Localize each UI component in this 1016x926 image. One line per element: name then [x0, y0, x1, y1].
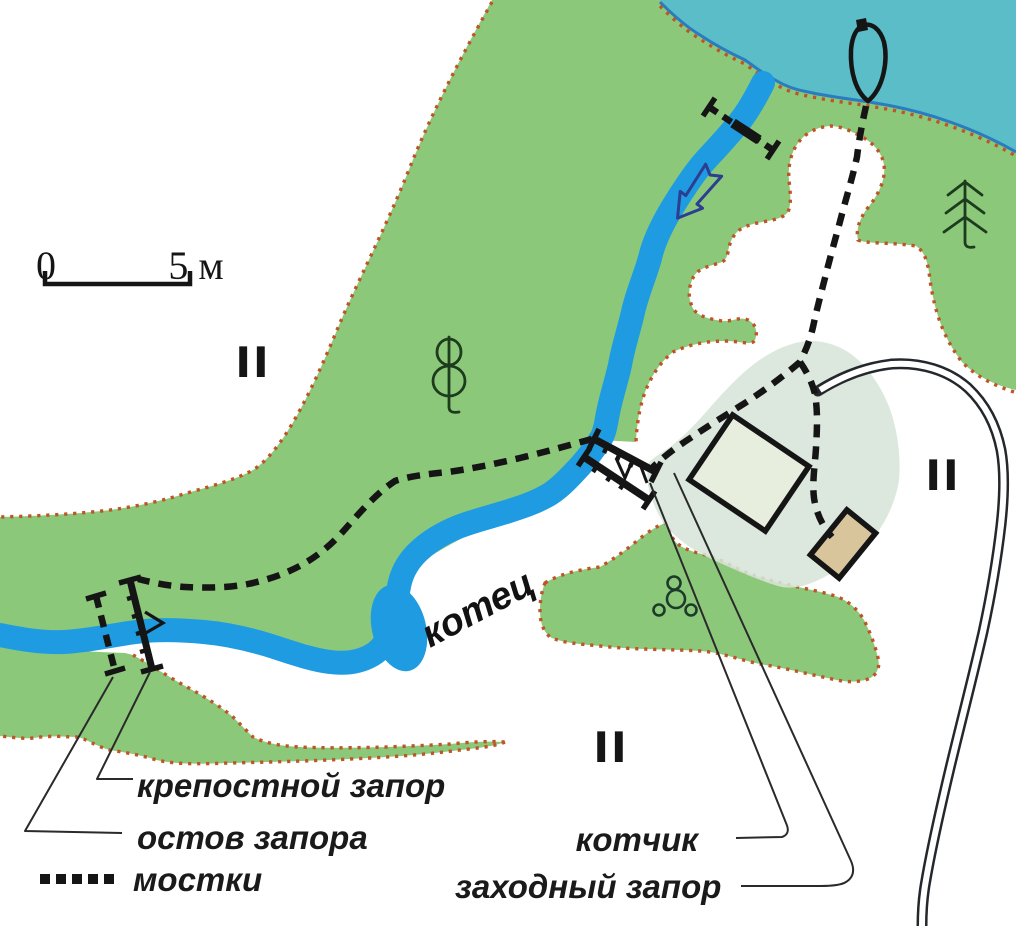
legend-label-krepostnoy: крепостной запор	[137, 767, 445, 804]
callout-label-zakhodny: заходный запор	[455, 868, 721, 905]
scale-end-label: 5 м	[168, 243, 223, 288]
site-plan-map: 0 5 м II II II котец крепостной запор ос…	[0, 0, 1016, 926]
map-canvas: 0 5 м II II II котец крепостной запор ос…	[0, 0, 1016, 926]
callout-label-kotchik: котчик	[576, 821, 701, 858]
legend-label-ostov: остов запора	[137, 819, 368, 856]
zone-marker-right: II	[925, 451, 960, 500]
scale-start-label: 0	[36, 243, 56, 288]
zone-marker-left: II	[235, 338, 270, 387]
zone-marker-bottom: II	[593, 723, 628, 772]
legend-label-mostki: мостки	[133, 861, 262, 898]
